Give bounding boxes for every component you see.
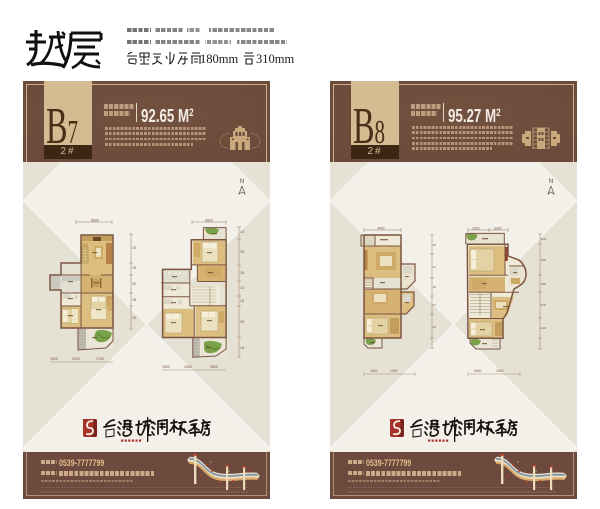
svg-text:3600: 3600 (210, 365, 218, 369)
svg-text:1500: 1500 (390, 369, 398, 373)
svg-text:1300: 1300 (240, 286, 244, 290)
svg-text:2450: 2450 (184, 365, 192, 369)
svg-text:6600: 6600 (91, 219, 99, 223)
svg-text:2400: 2400 (433, 265, 436, 269)
svg-text:3300: 3300 (433, 243, 436, 247)
svg-text:2100: 2100 (132, 282, 136, 286)
svg-text:1800: 1800 (433, 285, 436, 289)
svg-text:1600: 1600 (240, 346, 244, 350)
svg-text:1500: 1500 (496, 369, 504, 373)
svg-text:3100: 3100 (541, 303, 546, 307)
svg-text:2200: 2200 (472, 226, 480, 230)
svg-text:6600: 6600 (205, 219, 213, 223)
svg-text:2000: 2000 (240, 271, 244, 275)
svg-text:3900: 3900 (240, 320, 244, 324)
svg-text:2700: 2700 (433, 303, 436, 307)
svg-text:2900: 2900 (72, 357, 80, 361)
svg-text:1000: 1000 (541, 237, 546, 241)
svg-text:1500: 1500 (50, 357, 58, 361)
svg-text:3750: 3750 (96, 357, 104, 361)
svg-text:3300: 3300 (433, 325, 436, 329)
svg-text:310mm: 310mm (256, 52, 294, 66)
svg-text:1800: 1800 (541, 282, 546, 286)
svg-text:3300: 3300 (132, 246, 136, 250)
svg-text:1000: 1000 (240, 299, 244, 303)
svg-text:1500: 1500 (132, 266, 136, 270)
svg-text:4400: 4400 (377, 226, 385, 230)
svg-text:1200: 1200 (240, 230, 244, 234)
svg-text:180mm: 180mm (200, 52, 238, 66)
svg-text:3300: 3300 (541, 258, 546, 262)
svg-text:3300: 3300 (132, 316, 136, 320)
svg-text:4400: 4400 (370, 369, 378, 373)
svg-text:2400: 2400 (541, 326, 546, 330)
svg-text:3300: 3300 (494, 226, 502, 230)
svg-text:4400: 4400 (474, 369, 482, 373)
svg-text:1800: 1800 (132, 298, 136, 302)
svg-text:1500: 1500 (162, 365, 170, 369)
svg-text:3300: 3300 (240, 250, 244, 254)
